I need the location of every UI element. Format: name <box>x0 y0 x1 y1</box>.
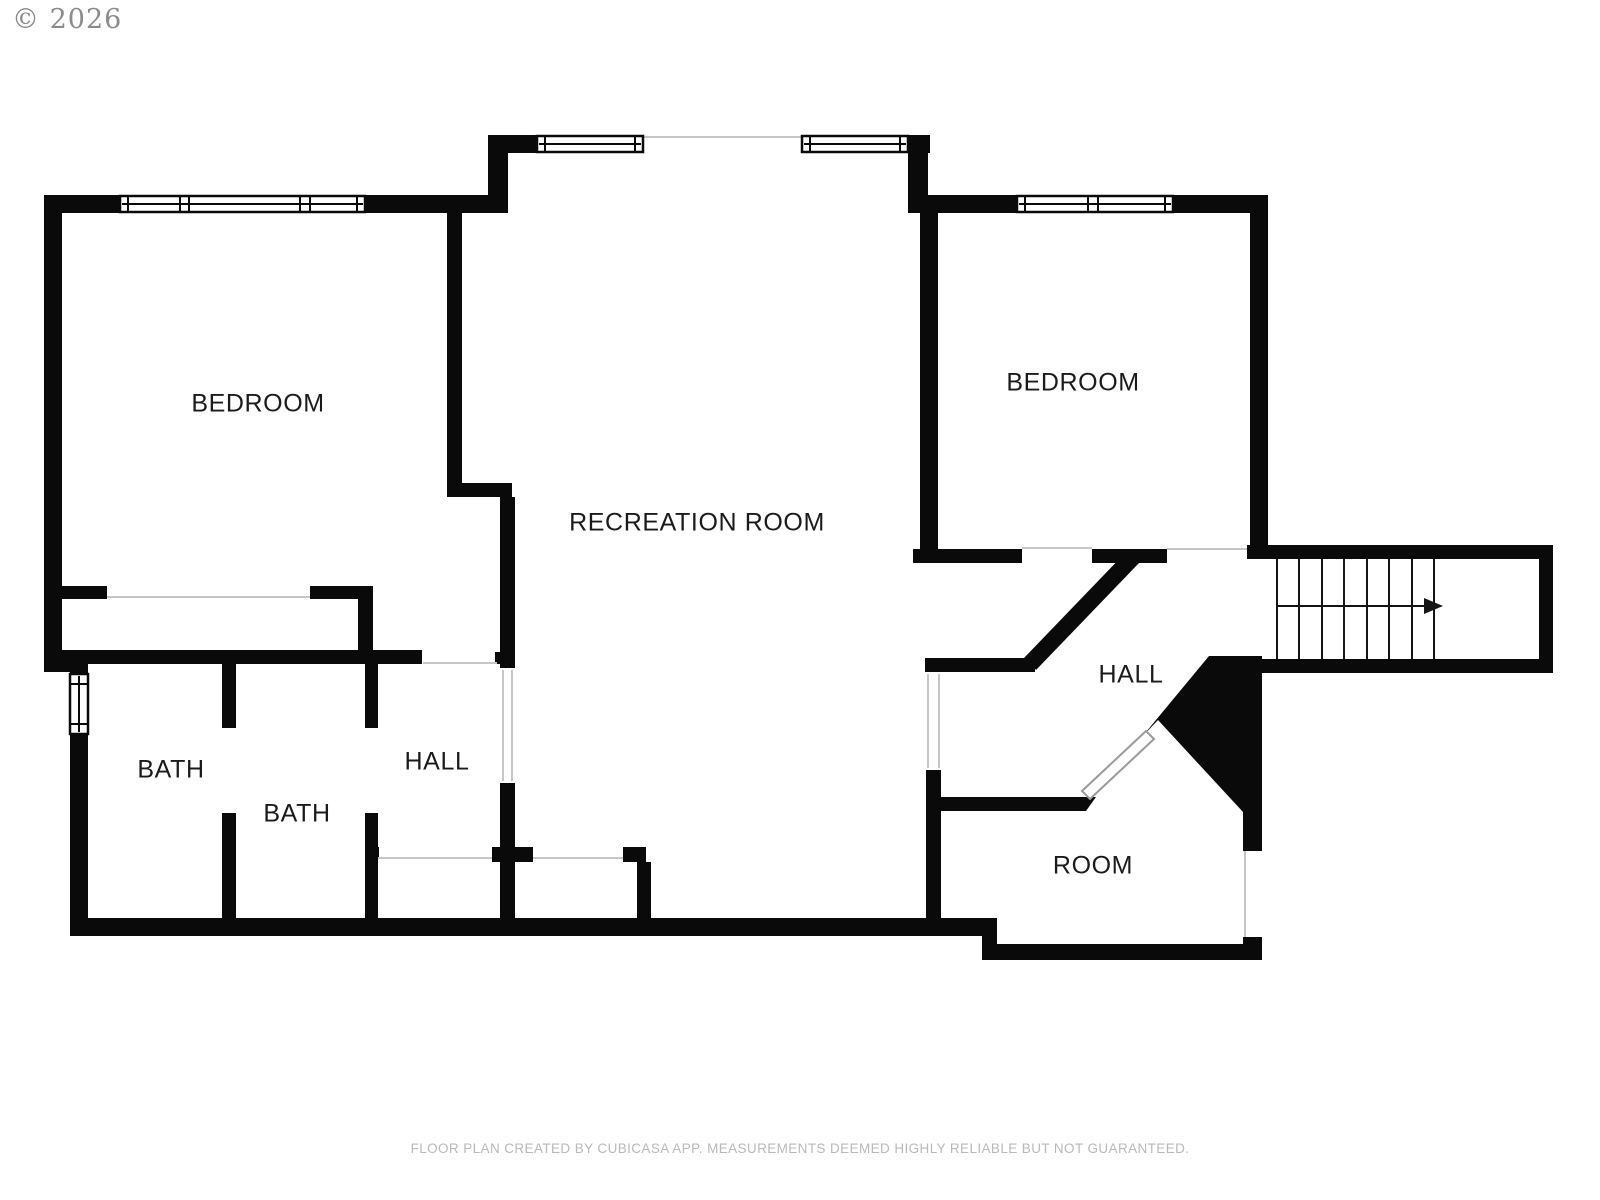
floor-plan-drawing <box>0 0 1600 1200</box>
room-label-bedroom-left: BEDROOM <box>191 390 324 419</box>
stairs <box>1277 559 1443 659</box>
room-label-bath-1: BATH <box>137 756 204 785</box>
walls <box>44 135 1553 960</box>
copyright-text: © 2026 <box>12 4 122 35</box>
room-label-bath-2: BATH <box>263 800 330 829</box>
floor-plan-canvas: BEDROOM RECREATION ROOM BEDROOM BATH BAT… <box>0 0 1600 1200</box>
disclaimer-text: FLOOR PLAN CREATED BY CUBICASA APP. MEAS… <box>0 1141 1600 1156</box>
room-label-recreation-room: RECREATION ROOM <box>569 509 825 538</box>
door-leaf <box>1082 731 1154 799</box>
stairs-direction-arrow-icon <box>1277 598 1443 614</box>
room-label-bedroom-right: BEDROOM <box>1006 369 1139 398</box>
windows <box>70 136 1173 734</box>
room-label-hall-right: HALL <box>1099 661 1164 690</box>
room-label-hall-left: HALL <box>405 748 470 777</box>
room-label-room: ROOM <box>1053 852 1133 881</box>
